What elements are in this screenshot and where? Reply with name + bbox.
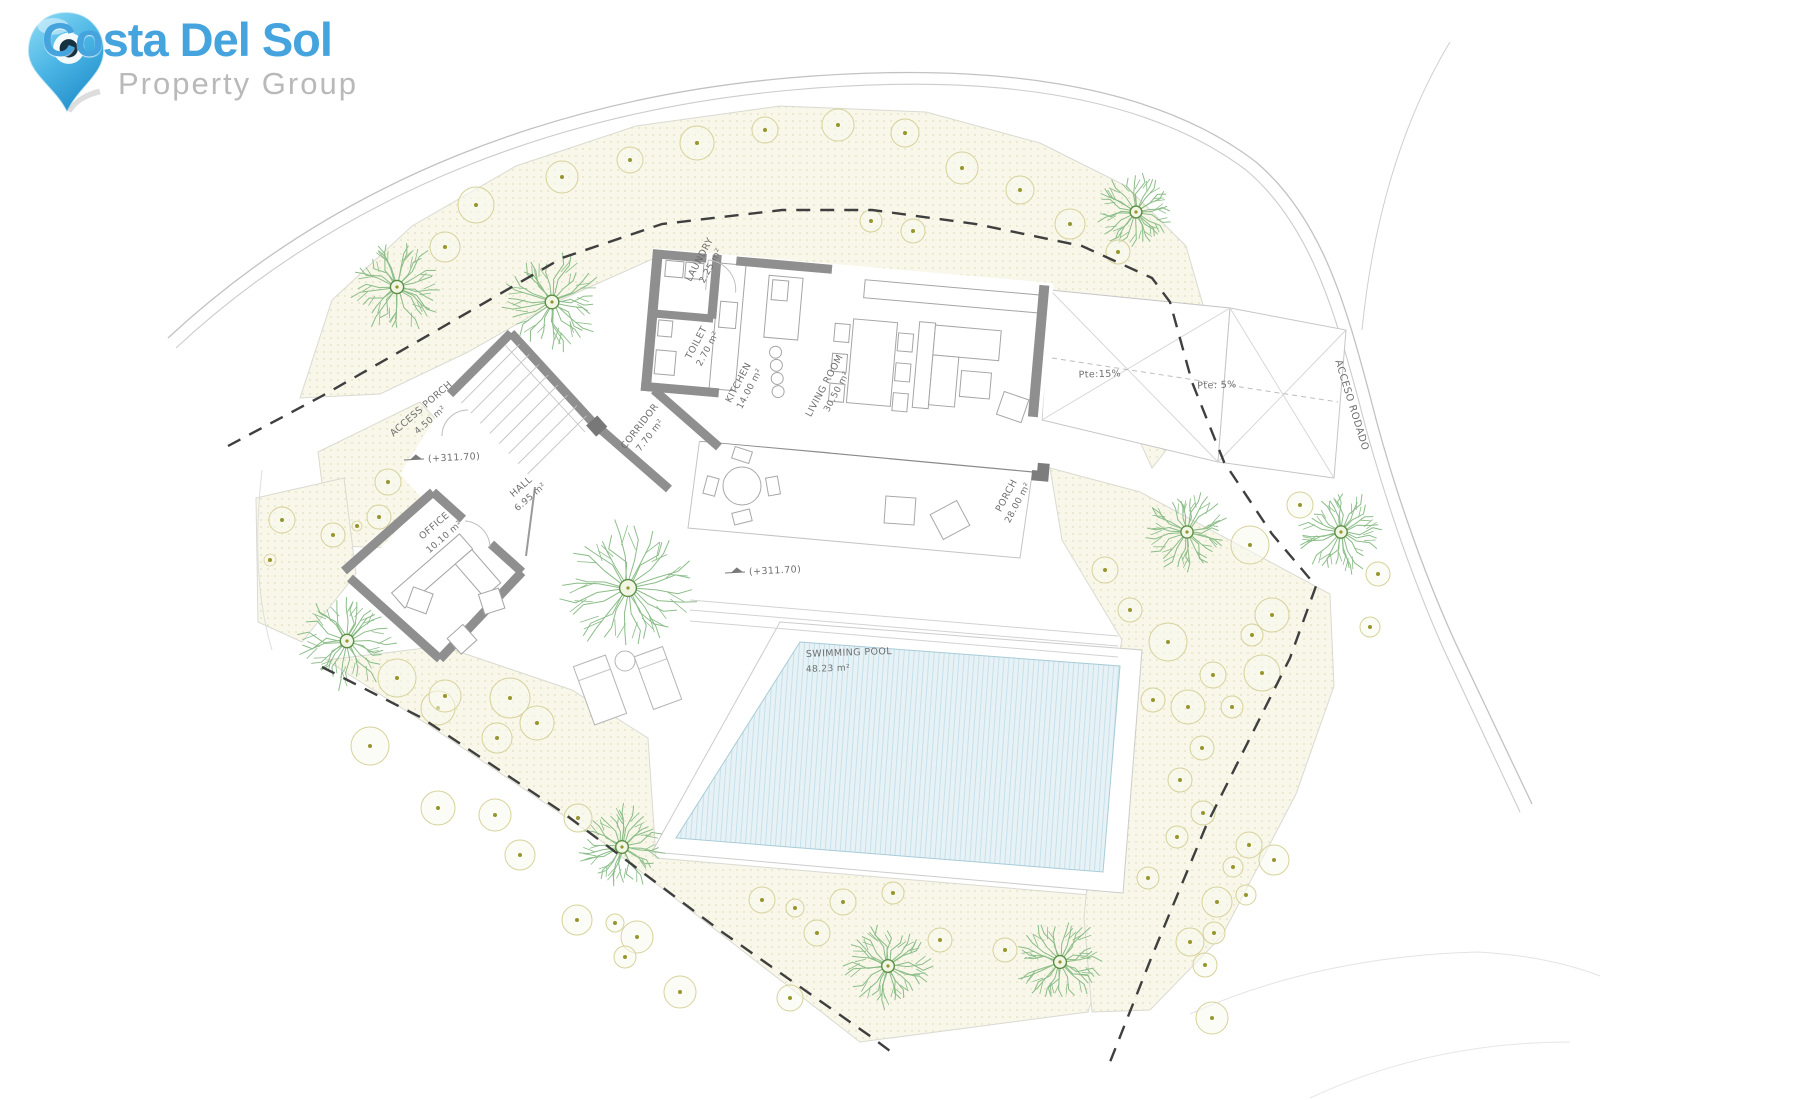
bush-icon: [614, 946, 636, 968]
bush-icon: [321, 523, 345, 547]
bush-icon: [1141, 688, 1165, 712]
bush-icon: [1137, 867, 1159, 889]
bush-icon: [1202, 887, 1232, 917]
bush-icon: [1006, 176, 1034, 204]
bush-icon: [946, 152, 978, 184]
bush-icon: [804, 920, 830, 946]
bush-icon: [1190, 736, 1214, 760]
bush-icon: [928, 928, 952, 952]
bush-icon: [1255, 598, 1289, 632]
bush-icon: [505, 840, 535, 870]
bush-icon: [378, 659, 416, 697]
bush-icon: [1221, 696, 1243, 718]
bush-icon: [1092, 557, 1118, 583]
bush-icon: [1168, 768, 1192, 792]
elevation-marker: (+311.70): [725, 564, 802, 579]
bush-icon: [1055, 209, 1085, 239]
bush-icon: [1259, 845, 1289, 875]
tree-icon: [560, 520, 698, 646]
bush-icon: [1366, 562, 1390, 586]
label-pool-area: 48.23 m²: [806, 663, 851, 675]
bush-icon: [351, 727, 389, 765]
bush-icon: [458, 187, 494, 223]
bush-icon: [617, 147, 643, 173]
bush-icon: [1287, 492, 1313, 518]
bush-icon: [375, 469, 401, 495]
swimming-pool: [676, 642, 1120, 872]
bush-icon: [1203, 922, 1225, 944]
bush-icon: [1360, 617, 1380, 637]
bush-icon: [562, 905, 592, 935]
bush-icon: [1244, 655, 1280, 691]
company-logo: Costa Del Sol Property Group: [6, 6, 336, 121]
bush-icon: [777, 985, 803, 1011]
bush-icon: [830, 889, 856, 915]
bush-icon: [606, 914, 624, 932]
bush-icon: [482, 723, 512, 753]
bush-icon: [664, 976, 696, 1008]
bush-icon: [1236, 885, 1256, 905]
pool-terrace: [573, 600, 1142, 893]
bush-icon: [1118, 598, 1142, 622]
brand-name: Costa Del Sol: [42, 12, 332, 67]
bush-icon: [680, 126, 714, 160]
bush-icon: [752, 117, 778, 143]
elevation-value: (+311.70): [749, 564, 802, 578]
brand-subtitle: Property Group: [118, 66, 358, 102]
label-ramp-5: Pte: 5%: [1197, 379, 1237, 391]
bush-icon: [546, 161, 578, 193]
bush-icon: [367, 505, 391, 529]
bush-icon: [993, 938, 1017, 962]
bush-icon: [1171, 690, 1205, 724]
site-plan-page: Costa Del Sol Property Group: [0, 0, 1800, 1100]
bush-icon: [1200, 662, 1226, 688]
road-branch: [1362, 42, 1450, 330]
bush-icon: [269, 507, 295, 533]
label-ramp-15: Pte:15%: [1079, 368, 1122, 380]
bush-icon: [1193, 953, 1217, 977]
bush-icon: [1223, 857, 1243, 877]
bush-icon: [749, 887, 775, 913]
bush-icon: [1236, 832, 1262, 858]
bush-icon: [429, 680, 461, 712]
bush-icon: [430, 232, 460, 262]
bush-icon: [1231, 526, 1269, 564]
bush-icon: [822, 109, 854, 141]
bush-icon: [786, 899, 804, 917]
bush-icon: [1196, 1002, 1228, 1034]
bush-icon: [1176, 928, 1204, 956]
bush-icon: [479, 799, 511, 831]
bush-icon: [1166, 826, 1188, 848]
contour-line-1: [1190, 952, 1600, 1014]
contour-line-2: [1310, 1042, 1570, 1098]
bush-icon: [901, 219, 925, 243]
bush-icon: [891, 119, 919, 147]
bush-icon: [520, 706, 554, 740]
bush-icon: [421, 791, 455, 825]
bush-icon: [860, 210, 882, 232]
bush-icon: [882, 882, 904, 904]
floor-plan-drawing: LAUNDRY2.25 m²TOILET2.70 m²KITCHEN14.00 …: [0, 0, 1800, 1100]
bush-icon: [1106, 240, 1130, 264]
bush-icon: [1149, 623, 1187, 661]
